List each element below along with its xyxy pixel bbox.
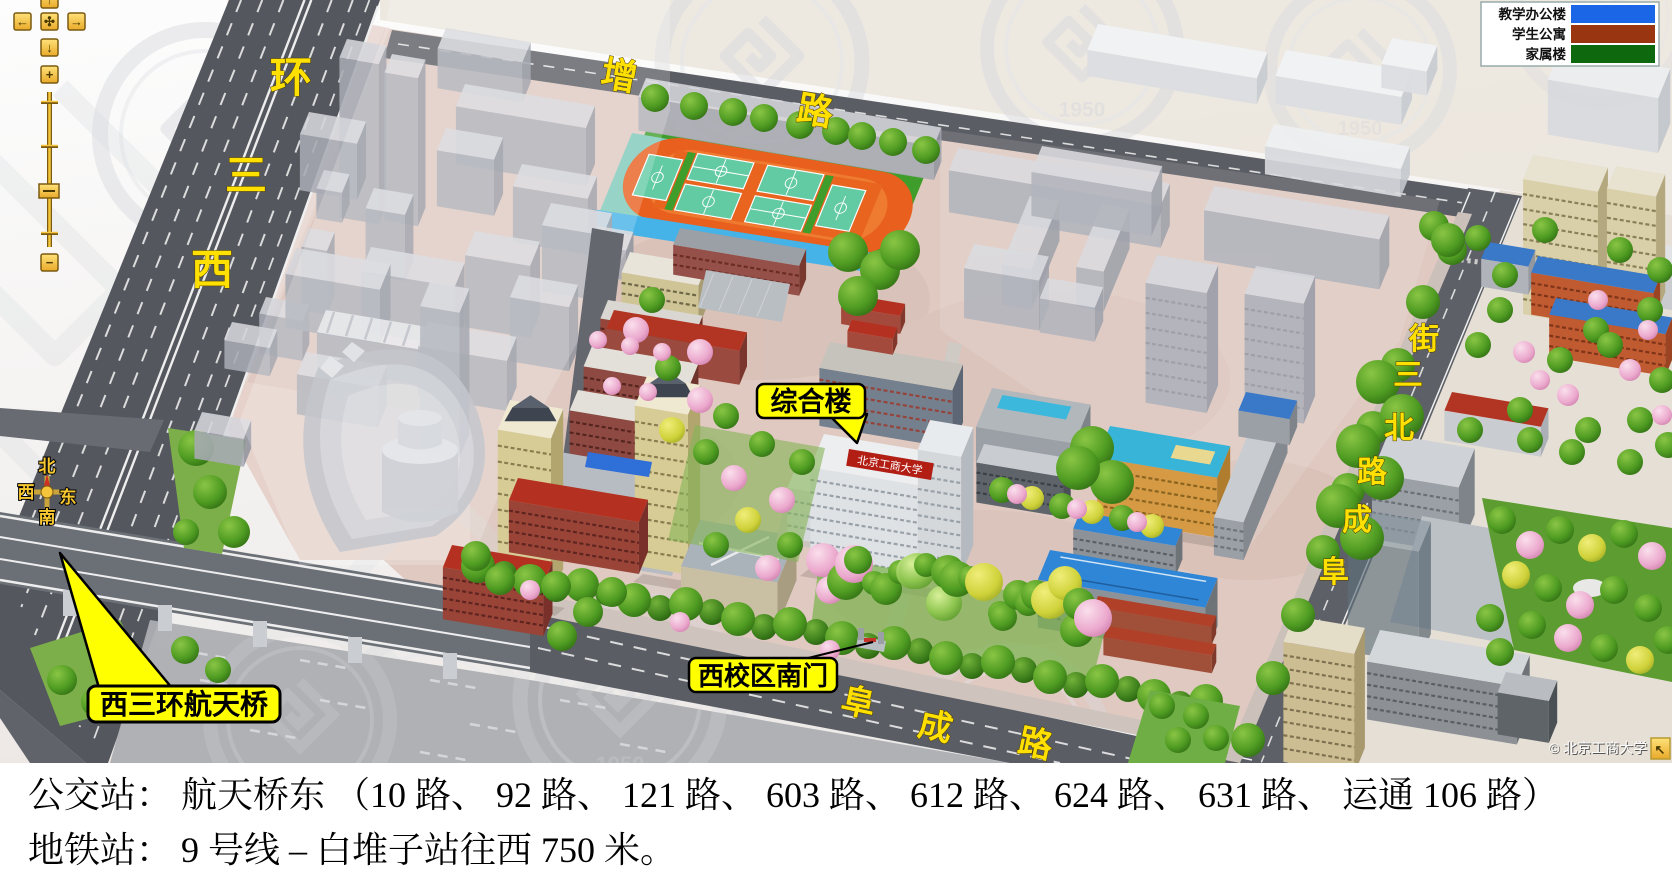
svg-text:+: + <box>46 67 54 82</box>
svg-text:←: ← <box>16 14 29 29</box>
svg-text:教学办公楼: 教学办公楼 <box>1499 6 1567 22</box>
svg-text:阜: 阜 <box>1319 556 1349 589</box>
svg-text:环: 环 <box>270 54 312 101</box>
svg-text:三: 三 <box>1393 359 1423 392</box>
svg-text:西校区南门: 西校区南门 <box>698 661 828 691</box>
svg-text:© 北京工商大学: © 北京工商大学 <box>1549 740 1647 756</box>
svg-text:1950: 1950 <box>1059 98 1106 121</box>
svg-text:路: 路 <box>1357 456 1388 489</box>
svg-text:街: 街 <box>1408 323 1439 356</box>
svg-text:↖: ↖ <box>1655 742 1666 757</box>
svg-text:西三环航天桥: 西三环航天桥 <box>100 688 268 720</box>
svg-text:✣: ✣ <box>44 14 55 29</box>
svg-text:三: 三 <box>225 152 267 199</box>
svg-text:地铁站： 9 号线 – 白堆子站往西 750 米。: 地铁站： 9 号线 – 白堆子站往西 750 米。 <box>28 830 676 870</box>
svg-text:学生公寓: 学生公寓 <box>1512 26 1566 42</box>
svg-text:北: 北 <box>1384 412 1414 445</box>
svg-text:↓: ↓ <box>46 40 53 55</box>
svg-text:→: → <box>70 14 83 29</box>
svg-text:北: 北 <box>39 457 56 476</box>
svg-text:南: 南 <box>39 507 56 527</box>
svg-text:家属楼: 家属楼 <box>1526 46 1567 62</box>
svg-text:增: 增 <box>598 52 641 99</box>
svg-text:−: − <box>46 255 54 270</box>
svg-text:西: 西 <box>191 246 233 293</box>
svg-text:西: 西 <box>18 483 35 502</box>
svg-text:东: 东 <box>60 487 77 507</box>
svg-text:公交站： 航天桥东 （10 路、 92 路、 121: 公交站： 航天桥东 （10 路、 92 路、 121 路、 603 路、 612… <box>28 775 1558 815</box>
svg-text:成: 成 <box>1342 504 1372 537</box>
svg-text:↑: ↑ <box>46 0 53 7</box>
svg-text:综合楼: 综合楼 <box>771 386 852 417</box>
